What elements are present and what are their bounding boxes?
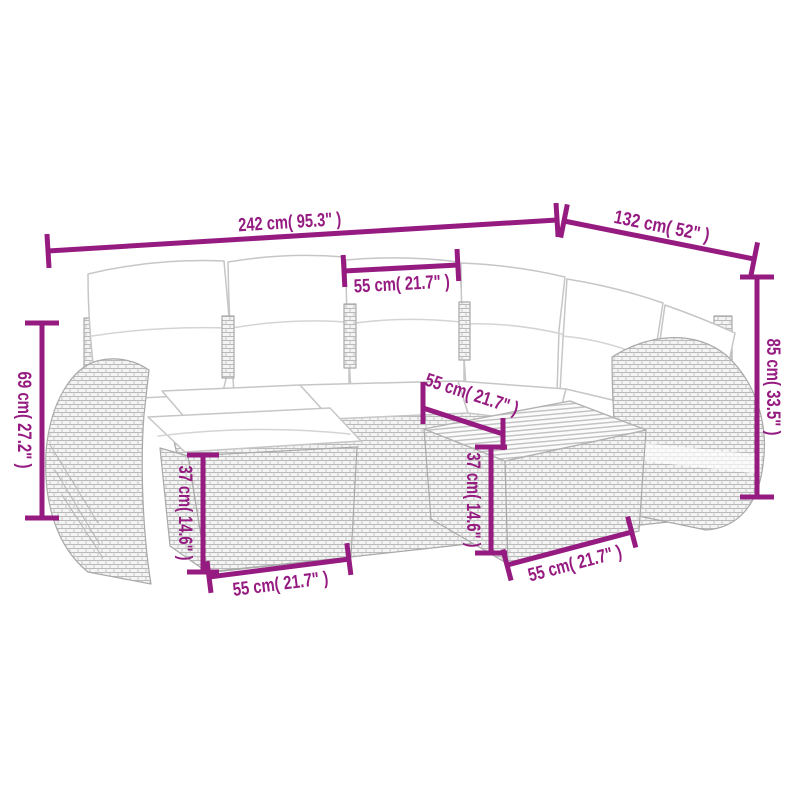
back-cushion-4 <box>461 263 565 393</box>
sofa-illustration <box>46 255 765 584</box>
footstool-front-face <box>188 447 357 572</box>
dimension-left-arm-height-label: 69 cm( 27.2" ) <box>13 372 34 469</box>
back-cushion-2 <box>228 255 349 393</box>
dimension-total-depth: 132 cm( 52" ) <box>561 197 759 275</box>
cushion-strap-3 <box>459 302 470 360</box>
cushion-strap-1 <box>222 316 234 378</box>
furniture-dimension-diagram: 242 cm( 95.3" ) 132 cm( 52" ) 55 cm( 21.… <box>0 0 800 800</box>
cushion-strap-2 <box>344 304 356 368</box>
dimension-footstool-height-label: 37 cm( 14.6" ) <box>174 466 195 561</box>
diagram-canvas: 242 cm( 95.3" ) 132 cm( 52" ) 55 cm( 21.… <box>0 0 800 800</box>
dimension-table-height-label: 37 cm( 14.6" ) <box>462 453 483 548</box>
dimension-back-height-label: 85 cm( 33.5" ) <box>762 339 783 436</box>
left-armrest <box>46 359 151 584</box>
